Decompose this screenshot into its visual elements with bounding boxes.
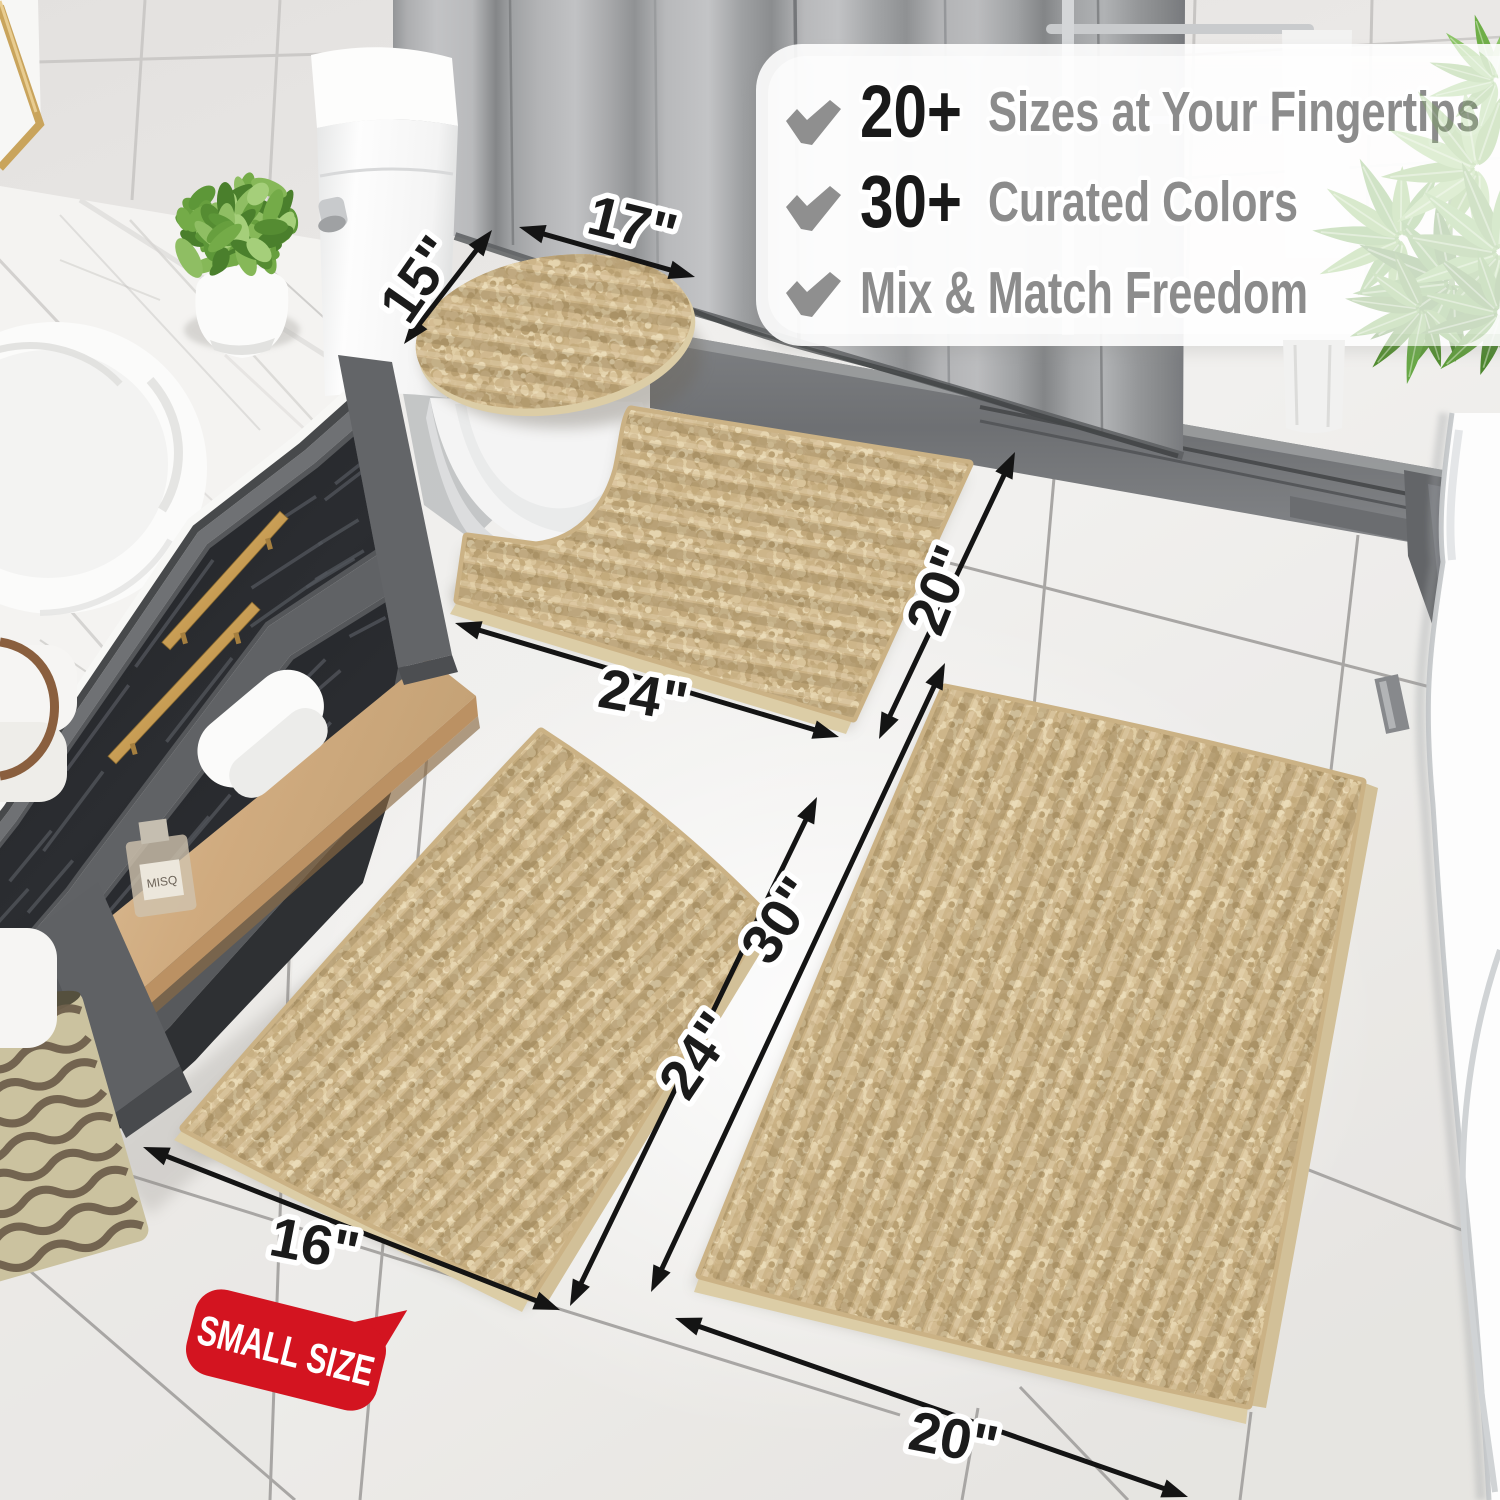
svg-text:30+: 30+	[860, 160, 962, 243]
svg-text:Mix & Match Freedom: Mix & Match Freedom	[860, 260, 1308, 326]
svg-text:20+: 20+	[860, 70, 962, 153]
svg-text:Curated Colors: Curated Colors	[988, 170, 1298, 234]
